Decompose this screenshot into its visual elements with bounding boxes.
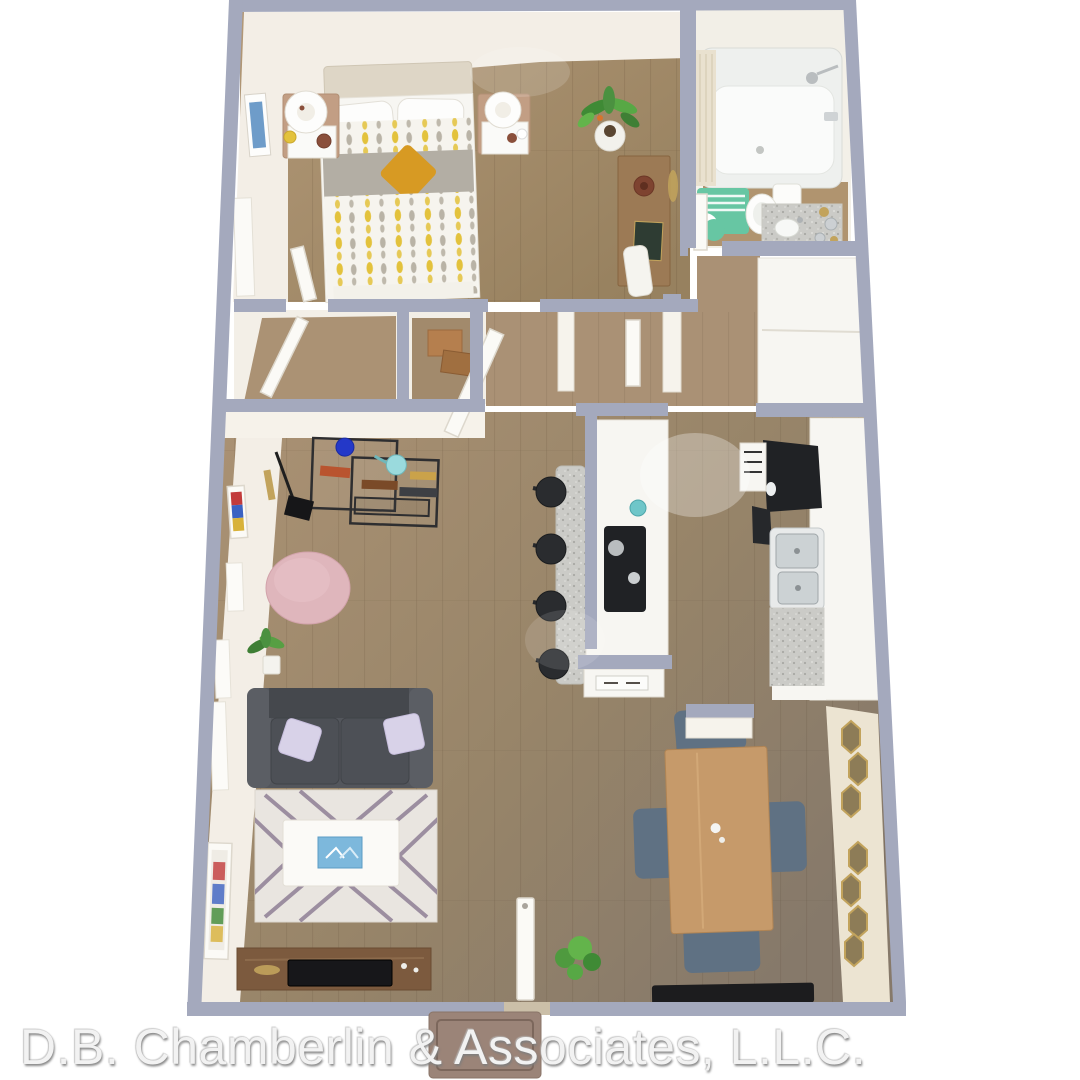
lamp-finial [300,106,305,111]
clay-pot [507,133,517,143]
floor-plan-rendering [0,0,1080,1080]
art-color [232,505,244,519]
sofa-group [247,688,433,788]
bathroom-south-wall [722,241,858,256]
plant-leaf [603,86,615,114]
hex-mirror [849,842,867,874]
tall-wall-art [204,843,232,960]
island-cooktop [604,526,646,612]
throw-pillow [383,713,426,756]
plant-leaf [261,628,271,648]
fridge-side [752,506,772,545]
wall-window-panel [214,640,231,698]
pot [628,572,640,584]
teal-watering-can [386,455,407,476]
tub-drain [756,146,764,154]
hex-mirror [842,721,860,753]
plant-foliage [583,953,601,971]
art-color [211,926,224,942]
light-spot [640,433,750,517]
book-stack [410,471,436,480]
watermark-text: D.B. Chamberlin & Associates, L.L.C. [20,1018,1060,1076]
book-stack [399,487,437,497]
counter-granite [770,608,824,686]
sofa-arm-left [247,688,271,788]
bedroom-south-wall [234,299,286,312]
bedroom-desk [618,156,678,297]
bathtub-basin [712,86,834,174]
base-cabinet [772,686,826,700]
toiletry-bottle [819,207,829,217]
wall-window-panel [226,563,244,612]
hex-mirror [849,753,867,785]
yellow-dish [284,131,296,143]
hex-mirror [845,934,863,966]
etagere-lower-shelf [355,497,430,516]
bed [318,61,480,302]
door-handle [522,903,528,909]
lamp-top [297,103,315,121]
flat-tv [288,960,392,986]
bedroom-bathroom-wall [680,6,696,248]
art-color [211,908,224,924]
front-door-open [517,898,534,1000]
area-rug-group [253,790,439,922]
island-west-wall [585,413,597,649]
planter-pot [263,656,280,674]
fridge-handle [766,482,776,496]
blue-hat [336,438,355,457]
bar-stool [536,534,566,564]
remote [401,963,407,969]
kitchen-north-wall [756,403,868,417]
white-cup [517,129,527,139]
round-wall-mirror [668,170,678,202]
hall-wall-cap [663,294,681,304]
sofa-back [269,688,409,718]
closet-divider-wall [397,310,409,404]
hall-wall-stub [663,300,681,392]
bathroom [692,48,842,252]
plant-foliage [567,964,583,980]
hex-mirror [842,874,860,906]
vanity-sink [775,219,799,237]
kitchen-sink [770,528,824,610]
lamp-top [495,102,511,118]
half-wall-face [686,718,752,738]
small-wall-art [227,485,248,538]
toiletry-bottle [825,218,837,230]
kitchen-dining-half-wall [686,704,754,718]
book-stack [362,480,398,490]
sink-drain [794,548,800,554]
pouf-highlight [274,558,330,602]
cardboard-box [441,350,474,376]
gold-tray [254,965,280,975]
teal-kettle [630,500,646,516]
art-color [232,518,244,532]
hall-door [626,320,640,386]
planter-soil [604,125,616,137]
fridge-top [763,440,822,512]
closet-wall-south-face [222,410,485,438]
art-color [231,492,243,506]
pot [608,540,624,556]
shower-head [806,72,818,84]
desk-vase-mouth [640,182,648,190]
light-spot [525,610,605,670]
remote [414,968,419,973]
entry-door-mat [652,983,814,1006]
nightstand-right [478,92,530,154]
art-color [213,862,226,880]
bedroom-window [233,198,254,297]
sink-drain [795,585,801,591]
tv-console-group [237,948,431,990]
nightstand-left [283,91,339,158]
floor-plan-page: D.B. Chamberlin & Associates, L.L.C. [0,0,1080,1080]
hex-mirror [842,785,860,817]
closet-east-wall [470,310,483,404]
bar-stool [536,477,566,507]
vanity-faucet [797,217,803,223]
clay-pot [317,134,331,148]
light-spot [470,47,570,97]
hall-floor-planks [486,312,760,406]
hex-mirror [849,906,867,938]
closet-south-wall [222,399,485,412]
plant-bloom [597,115,603,121]
bathroom-top-wall-face [695,8,845,52]
art-color [212,884,225,904]
island-drawer [596,676,648,690]
north-wall [229,0,856,12]
bathroom-south-wall [680,240,688,256]
hall-wall-stub [558,311,574,391]
south-wall-right [550,1002,906,1016]
tub-faucet [824,112,838,121]
